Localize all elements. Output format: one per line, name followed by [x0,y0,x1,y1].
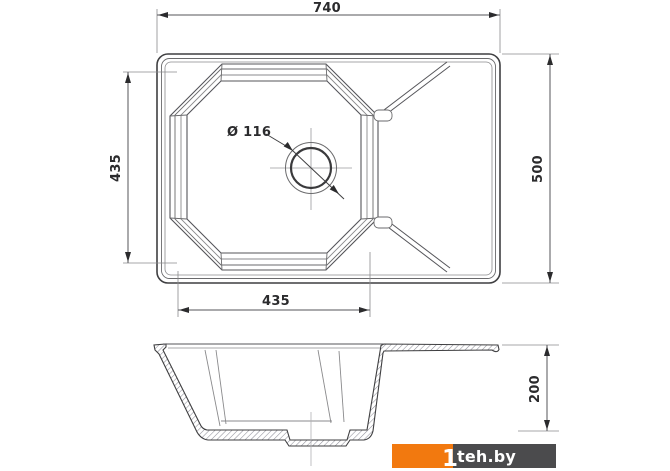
dimension-200: 200 [502,345,559,431]
arrowhead [544,346,550,356]
arrowhead [359,307,369,313]
bowl-edge-tab-top [374,110,392,121]
dim-label-500: 500 [531,155,546,183]
far-wall-line [318,350,331,423]
wing-ridge [380,62,447,113]
dimension-500: 500 [502,54,559,283]
wing-ridge [384,66,450,116]
dimension-740: 740 [157,1,500,53]
corner-connector [221,253,222,270]
dimension-435-horizontal: 435 [178,252,370,317]
dim-label-435-vertical: 435 [109,154,124,182]
sink-rim-line-2 [165,62,492,275]
corner-connector [170,115,187,116]
drain-hole [270,128,352,210]
dim-label-435-horizontal: 435 [262,294,290,309]
corner-connector [221,64,222,81]
corner-connector [326,253,327,270]
far-wall-line [339,351,344,422]
logo-text: teh.by [457,447,516,466]
bowl-edge-tab-bottom [374,217,392,228]
corner-connector [170,218,187,219]
arrowhead [489,12,499,18]
sink-rim-line-1 [162,59,496,279]
arrowhead [547,272,553,282]
arrowhead [158,12,168,18]
drawing-canvas: 740 500 435 435 Ø 116 [0,0,670,471]
corner-connector [326,64,327,81]
top-view [157,54,500,283]
wing-ridge [384,218,450,268]
bowl-ring-2 [175,69,373,265]
arrowhead [179,307,189,313]
dim-label-740: 740 [313,1,341,16]
section-material [154,344,499,446]
logo-one-glyph: 1 [442,446,458,471]
bowl-ring-3 [181,75,367,259]
bowl-ring-inner [187,81,361,253]
arrowhead [547,55,553,65]
far-wall-lines [205,350,344,426]
drainboard-wing-lines [380,62,450,272]
dim-label-200: 200 [528,375,543,403]
wing-ridge [380,221,447,272]
dim-label-drain-diameter: Ø 116 [227,125,271,140]
arrowhead [125,73,131,83]
sink-outer-edge [157,54,500,283]
arrowhead [125,252,131,262]
dimension-435-vertical: 435 [109,72,177,263]
technical-drawing-svg: 740 500 435 435 Ø 116 [0,0,670,471]
arrowhead [544,420,550,430]
bowl-rings [170,64,378,270]
watermark-logo: 1 teh.by [392,444,556,471]
